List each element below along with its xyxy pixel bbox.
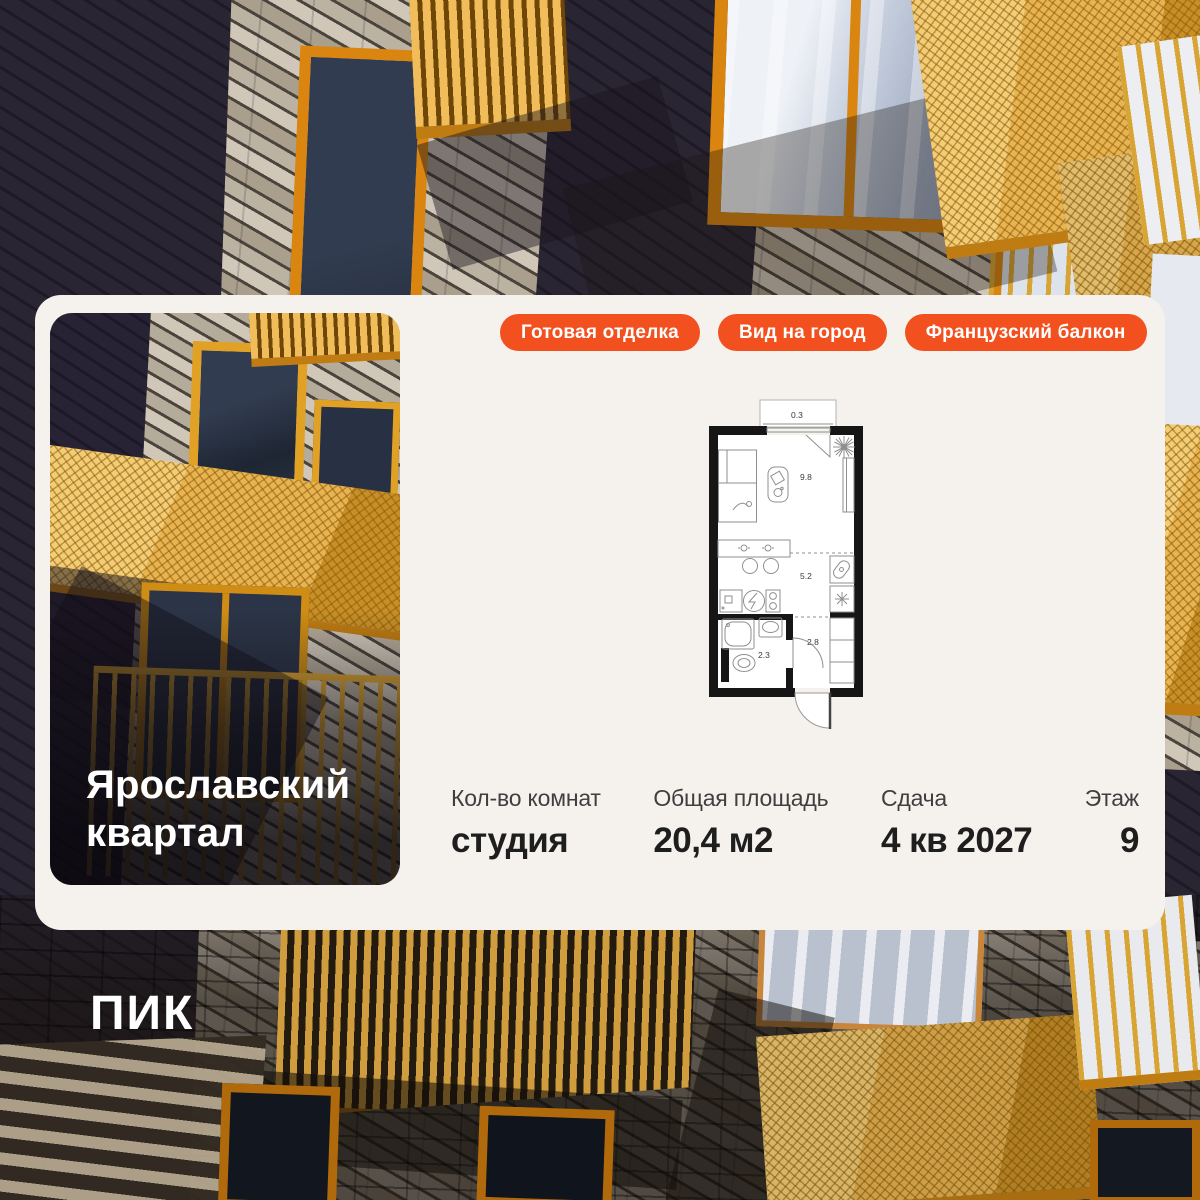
project-title: Ярославский квартал bbox=[86, 761, 350, 857]
plan-interior bbox=[718, 435, 854, 688]
project-photo: Ярославский квартал bbox=[50, 313, 400, 885]
badge-french-balcony: Французский балкон bbox=[905, 314, 1147, 351]
apartment-details: Кол-во комнат студия Общая площадь 20,4 … bbox=[451, 785, 1139, 861]
detail-rooms-value: студия bbox=[451, 821, 601, 861]
bottom-window-1 bbox=[218, 1083, 340, 1200]
badge-finish: Готовая отделка bbox=[500, 314, 700, 351]
plan-entrance-door-swing bbox=[795, 693, 830, 728]
plan-radiator-icon bbox=[833, 436, 855, 458]
plan-balcony-area: 0.3 bbox=[791, 410, 803, 420]
project-title-line1: Ярославский bbox=[86, 761, 350, 809]
plan-bathroom-area: 2.3 bbox=[758, 650, 770, 660]
detail-delivery-value: 4 кв 2027 bbox=[881, 821, 1032, 861]
detail-delivery: Сдача 4 кв 2027 bbox=[881, 785, 1032, 861]
feature-badges: Готовая отделка Вид на город Французский… bbox=[500, 314, 1147, 351]
project-title-line2: квартал bbox=[86, 809, 350, 857]
floor-plan: 0.3 bbox=[700, 395, 875, 740]
badge-view: Вид на город bbox=[718, 314, 887, 351]
detail-area-value: 20,4 м2 bbox=[653, 821, 828, 861]
detail-area-label: Общая площадь bbox=[653, 785, 828, 812]
listing-card[interactable]: Ярославский квартал Готовая отделка Вид … bbox=[35, 295, 1165, 930]
detail-rooms: Кол-во комнат студия bbox=[451, 785, 601, 861]
detail-floor-value: 9 bbox=[1085, 821, 1139, 861]
detail-floor-label: Этаж bbox=[1085, 785, 1139, 812]
detail-delivery-label: Сдача bbox=[881, 785, 1032, 812]
plan-room-area: 9.8 bbox=[800, 472, 812, 482]
detail-area: Общая площадь 20,4 м2 bbox=[653, 785, 828, 861]
balcony-gold-bottom-right bbox=[756, 1014, 1103, 1200]
detail-rooms-label: Кол-во комнат bbox=[451, 785, 601, 812]
pik-logo: ПИК bbox=[90, 986, 194, 1041]
plan-kitchen-area: 5.2 bbox=[800, 571, 812, 581]
detail-floor: Этаж 9 bbox=[1085, 785, 1139, 861]
bottom-window-3 bbox=[1090, 1120, 1200, 1200]
bottom-window-2 bbox=[476, 1106, 614, 1200]
